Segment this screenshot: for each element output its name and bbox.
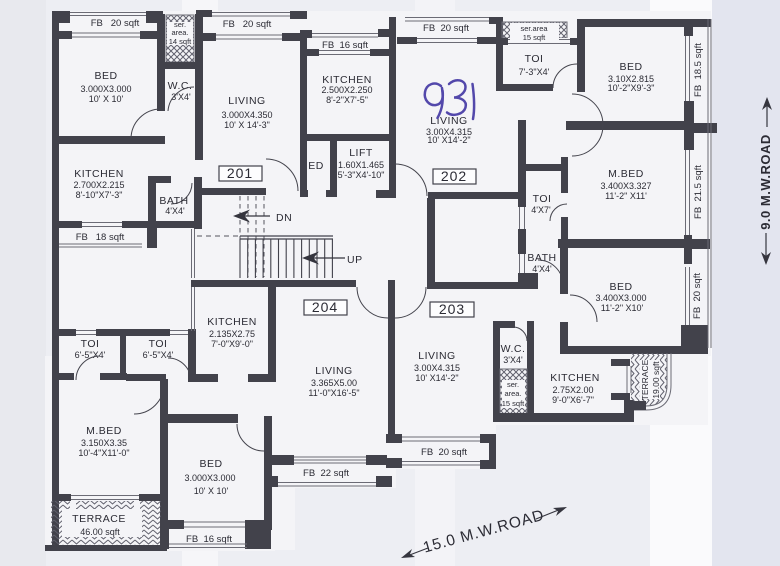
svg-text:KITCHEN: KITCHEN xyxy=(550,372,600,384)
svg-text:ED: ED xyxy=(308,160,324,172)
svg-text:M.BED: M.BED xyxy=(608,168,644,180)
svg-text:3.400X3.327: 3.400X3.327 xyxy=(600,181,651,191)
svg-text:5'-3"X4'-10": 5'-3"X4'-10" xyxy=(338,170,385,180)
svg-text:TOI: TOI xyxy=(525,53,544,65)
svg-text:2.500X2.250: 2.500X2.250 xyxy=(321,85,372,95)
svg-text:BED: BED xyxy=(199,458,222,470)
svg-text:2.700X2.215: 2.700X2.215 xyxy=(73,180,124,190)
svg-text:FB 18 sqft: FB 18 sqft xyxy=(76,232,125,243)
svg-text:UP: UP xyxy=(347,254,363,266)
svg-text:KITCHEN: KITCHEN xyxy=(207,316,257,328)
svg-text:FB 18.5 sqft: FB 18.5 sqft xyxy=(693,43,704,97)
svg-text:DN: DN xyxy=(276,212,292,224)
svg-text:FB 20 sqft: FB 20 sqft xyxy=(423,23,469,34)
svg-text:LIVING: LIVING xyxy=(430,115,467,127)
svg-text:FB 20 sqft: FB 20 sqft xyxy=(91,18,140,29)
svg-text:4'X4': 4'X4' xyxy=(532,264,552,274)
svg-text:3'X4': 3'X4' xyxy=(503,355,523,365)
svg-text:BED: BED xyxy=(619,61,642,73)
svg-text:10' X 10': 10' X 10' xyxy=(194,486,229,496)
svg-text:KITCHEN: KITCHEN xyxy=(74,168,124,180)
svg-text:BED: BED xyxy=(609,281,632,293)
svg-text:W.C.: W.C. xyxy=(501,343,526,355)
svg-text:FB 21.5 sqft: FB 21.5 sqft xyxy=(693,165,704,219)
svg-text:201: 201 xyxy=(227,165,253,181)
svg-text:10' X 14'-3": 10' X 14'-3" xyxy=(224,120,270,130)
svg-text:1.60X1.465: 1.60X1.465 xyxy=(338,160,384,170)
svg-text:TERRACE: TERRACE xyxy=(72,513,126,525)
svg-text:3.00X4.315: 3.00X4.315 xyxy=(414,363,460,373)
svg-text:LIVING: LIVING xyxy=(228,95,265,107)
svg-text:46.00 sqft: 46.00 sqft xyxy=(80,527,120,537)
svg-text:TOI: TOI xyxy=(81,338,100,350)
svg-text:8'-10"X7'-3": 8'-10"X7'-3" xyxy=(76,190,123,200)
svg-text:FB 16 sqft: FB 16 sqft xyxy=(186,534,232,545)
svg-text:LIVING: LIVING xyxy=(315,365,352,377)
svg-text:203: 203 xyxy=(439,301,465,317)
svg-text:4'X4': 4'X4' xyxy=(165,206,185,216)
svg-text:11'-0"X16'-5": 11'-0"X16'-5" xyxy=(308,388,359,398)
svg-text:7'-3"X4': 7'-3"X4' xyxy=(519,67,550,77)
svg-text:10' X14'-2": 10' X14'-2" xyxy=(415,373,458,383)
svg-text:3.400X3.000: 3.400X3.000 xyxy=(595,293,646,303)
svg-text:10'-4"X11'-0": 10'-4"X11'-0" xyxy=(78,448,129,458)
svg-text:ser.area: ser.area xyxy=(520,24,548,33)
svg-text:4'X7': 4'X7' xyxy=(531,205,551,215)
svg-text:7'-0"X9'-0": 7'-0"X9'-0" xyxy=(211,339,253,349)
svg-text:ser.: ser. xyxy=(507,380,519,389)
svg-text:area.: area. xyxy=(171,28,188,37)
svg-text:14 sqft: 14 sqft xyxy=(169,37,192,46)
svg-text:3.000X4.350: 3.000X4.350 xyxy=(221,110,272,120)
svg-text:3.365X5.00: 3.365X5.00 xyxy=(311,378,357,388)
svg-text:FB 20 sqft: FB 20 sqft xyxy=(421,447,467,458)
svg-text:10'-2"X9'-3": 10'-2"X9'-3" xyxy=(608,83,655,93)
svg-text:LIVING: LIVING xyxy=(418,350,455,362)
svg-text:202: 202 xyxy=(441,168,467,184)
svg-text:10' X 10': 10' X 10' xyxy=(89,94,124,104)
svg-text:2.75X2.00: 2.75X2.00 xyxy=(552,385,593,395)
svg-text:TOI: TOI xyxy=(533,193,552,205)
svg-text:3.000X3.000: 3.000X3.000 xyxy=(80,84,131,94)
svg-text:W.C.: W.C. xyxy=(168,80,193,92)
svg-text:M.BED: M.BED xyxy=(86,425,122,437)
svg-text:3'X4': 3'X4' xyxy=(171,92,191,102)
svg-text:204: 204 xyxy=(312,299,338,315)
svg-text:LIFT: LIFT xyxy=(349,147,373,159)
svg-text:11'-2" X11': 11'-2" X11' xyxy=(605,191,647,201)
svg-text:9'-0"X6'-7": 9'-0"X6'-7" xyxy=(552,395,594,405)
svg-text:15 sqft: 15 sqft xyxy=(523,33,546,42)
svg-text:TERRACE: TERRACE xyxy=(640,359,650,400)
svg-text:BATH: BATH xyxy=(527,252,556,264)
svg-text:3.150X3.35: 3.150X3.35 xyxy=(81,438,127,448)
svg-text:3.000X3.000: 3.000X3.000 xyxy=(184,473,235,483)
svg-text:2.135X2.75: 2.135X2.75 xyxy=(209,329,255,339)
svg-text:11'-2" X10': 11'-2" X10' xyxy=(601,303,644,313)
svg-text:TOI: TOI xyxy=(149,338,168,350)
svg-text:FB 20 sqft: FB 20 sqft xyxy=(223,19,272,30)
svg-text:FB 22 sqft: FB 22 sqft xyxy=(303,468,349,479)
svg-text:BED: BED xyxy=(94,70,117,82)
svg-text:10' X14'-2": 10' X14'-2" xyxy=(427,135,470,145)
svg-text:FB 20 sqft: FB 20 sqft xyxy=(692,273,703,319)
svg-text:area.: area. xyxy=(504,389,521,398)
svg-text:9.0 M.W.ROAD: 9.0 M.W.ROAD xyxy=(758,134,773,230)
svg-text:15 sqft: 15 sqft xyxy=(502,399,525,408)
svg-text:8'-2"X7'-5": 8'-2"X7'-5" xyxy=(326,95,368,105)
svg-text:19.00 sqft: 19.00 sqft xyxy=(651,361,661,399)
